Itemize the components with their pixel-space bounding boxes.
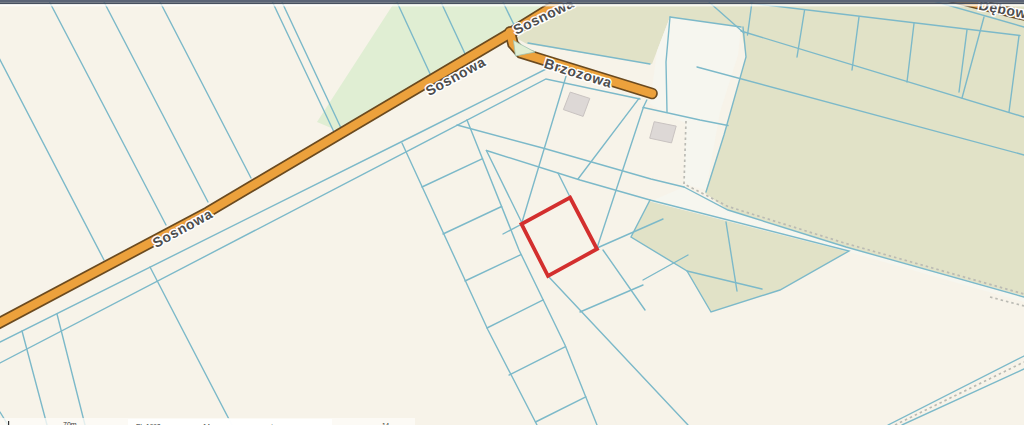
svg-text:70m: 70m [63, 421, 77, 425]
